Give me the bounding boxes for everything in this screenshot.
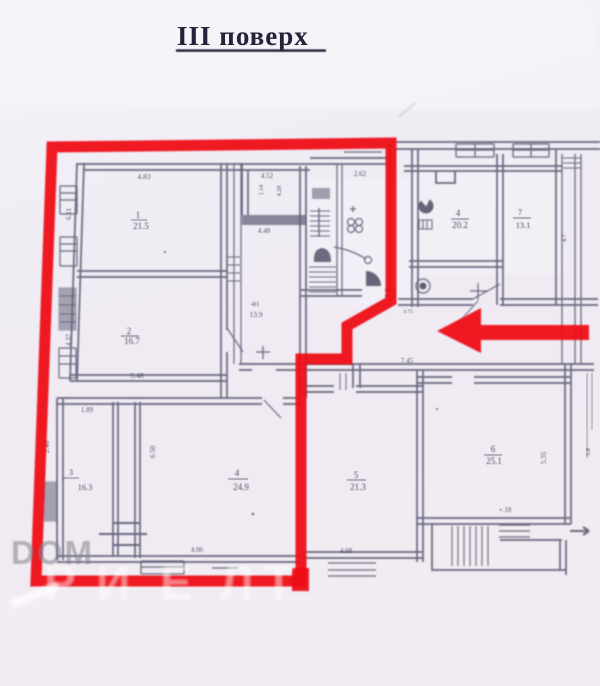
svg-text:4П: 4П [251,301,259,308]
svg-text:III поверх: III поверх [177,21,309,51]
svg-text:3.8: 3.8 [585,448,592,456]
svg-text:И: И [96,557,131,610]
svg-text:4: 4 [456,208,461,218]
svg-text:5.35: 5.35 [540,451,548,464]
svg-text:Л: Л [220,557,254,610]
svg-text:4.75: 4.75 [403,309,413,315]
svg-text:Е: Е [160,557,192,610]
svg-text:6: 6 [491,444,496,454]
svg-text:13.1: 13.1 [516,220,531,230]
svg-text:25.1: 25.1 [486,456,502,466]
svg-text:4.08: 4.08 [340,547,353,555]
svg-text:24.9: 24.9 [233,482,249,492]
svg-text:21.3: 21.3 [350,482,366,492]
svg-text:7.45: 7.45 [401,357,414,365]
svg-text:5: 5 [354,470,359,480]
svg-text:16.3: 16.3 [78,482,93,492]
svg-text:13.9: 13.9 [249,310,262,319]
svg-text:4.52: 4.52 [261,172,274,180]
svg-text:4.28: 4.28 [277,186,283,197]
svg-text:5.48: 5.48 [130,371,143,380]
svg-text:6.50: 6.50 [149,445,157,458]
svg-text:7: 7 [518,207,522,217]
svg-text:2.62: 2.62 [354,170,367,178]
svg-text:6.11: 6.11 [65,208,73,220]
svg-text:3: 3 [69,467,73,477]
svg-text:4.06: 4.06 [191,546,204,554]
svg-text:4.7: 4.7 [561,233,568,242]
svg-text:1.14: 1.14 [259,185,265,196]
svg-text:4.37: 4.37 [65,333,73,346]
svg-text:16.7: 16.7 [124,336,140,346]
svg-text:1: 1 [136,210,141,220]
svg-text:4.83: 4.83 [137,172,150,181]
svg-text:1.89: 1.89 [81,406,94,414]
svg-text:4: 4 [235,468,240,478]
svg-text:4.48: 4.48 [258,227,271,235]
svg-text:20.2: 20.2 [452,220,468,230]
svg-text:Р: Р [44,557,76,610]
svg-text:2: 2 [127,326,132,336]
svg-text:+.18: +.18 [499,506,512,514]
svg-text:Т: Т [264,557,293,610]
svg-text:21.5: 21.5 [133,221,149,231]
